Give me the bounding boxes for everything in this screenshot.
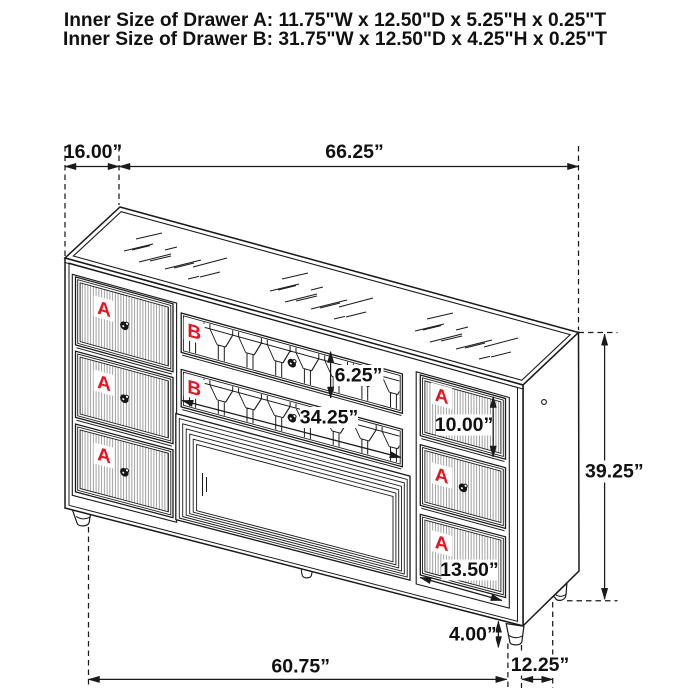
svg-text:16.00”: 16.00” bbox=[64, 141, 123, 163]
svg-text:60.75”: 60.75” bbox=[271, 656, 330, 678]
svg-text:39.25”: 39.25” bbox=[585, 461, 644, 483]
svg-text:13.50”: 13.50” bbox=[440, 559, 499, 581]
svg-text:A: A bbox=[435, 532, 449, 556]
svg-text:6.25”: 6.25” bbox=[335, 365, 383, 387]
svg-text:66.25”: 66.25” bbox=[325, 141, 384, 163]
svg-text:Inner Size of Drawer B: 31.75": Inner Size of Drawer B: 31.75"W x 12.50"… bbox=[63, 29, 607, 50]
svg-text:12.25”: 12.25” bbox=[511, 654, 570, 676]
svg-text:34.25”: 34.25” bbox=[300, 407, 359, 429]
svg-text:A: A bbox=[435, 384, 449, 409]
svg-text:A: A bbox=[97, 371, 111, 396]
svg-text:A: A bbox=[97, 444, 111, 468]
svg-text:A: A bbox=[435, 463, 449, 488]
svg-text:4.00”: 4.00” bbox=[449, 624, 497, 646]
svg-text:B: B bbox=[187, 320, 201, 345]
svg-text:10.00”: 10.00” bbox=[435, 414, 494, 436]
svg-text:B: B bbox=[187, 376, 201, 401]
svg-text:Inner Size of Drawer A: 11.75": Inner Size of Drawer A: 11.75"W x 12.50"… bbox=[64, 10, 607, 31]
svg-text:A: A bbox=[97, 297, 111, 322]
